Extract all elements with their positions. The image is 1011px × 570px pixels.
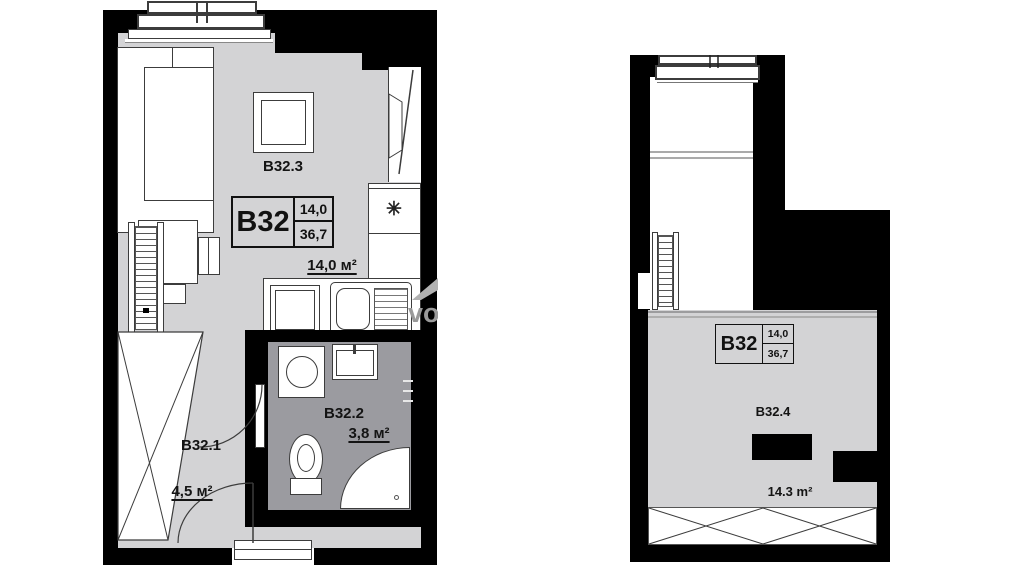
room-area-hallway: 4,5 м² [152, 483, 232, 499]
right-plan: B32 14,0 36,7 B32.4 14.3 m² [630, 55, 890, 562]
left-plan: ✳ [103, 10, 437, 565]
kitchen-door-leaf [399, 70, 413, 174]
room-id-bathroom: B32.2 [304, 405, 384, 421]
watermark-text: vo [408, 298, 438, 329]
unit-info-box: B32 14,0 36,7 [715, 324, 794, 364]
room-id-hallway: B32.1 [161, 437, 241, 453]
unit-value-top: 14,0 [762, 325, 793, 344]
room-area-mezzanine: 14.3 m² [748, 485, 832, 499]
left-plan-linework [103, 10, 437, 565]
unit-value-bottom: 36,7 [762, 344, 793, 363]
room-id-living: B32.3 [233, 158, 333, 175]
watermark: vo [408, 276, 438, 334]
watermark-swoosh-shape [412, 278, 438, 300]
unit-value-bottom: 36,7 [293, 222, 332, 246]
unit-label: B32 [716, 325, 762, 363]
room-area-bathroom: 3,8 м² [329, 425, 409, 441]
unit-value-top: 14,0 [293, 198, 332, 222]
unit-label: B32 [233, 198, 293, 246]
kitchen-door-panel [389, 94, 402, 158]
floorplan-canvas: ✳ [0, 0, 1011, 570]
unit-info-box: B32 14,0 36,7 [231, 196, 334, 248]
room-id-mezzanine: B32.4 [733, 405, 813, 419]
room-area-living: 14,0 м² [282, 257, 382, 274]
